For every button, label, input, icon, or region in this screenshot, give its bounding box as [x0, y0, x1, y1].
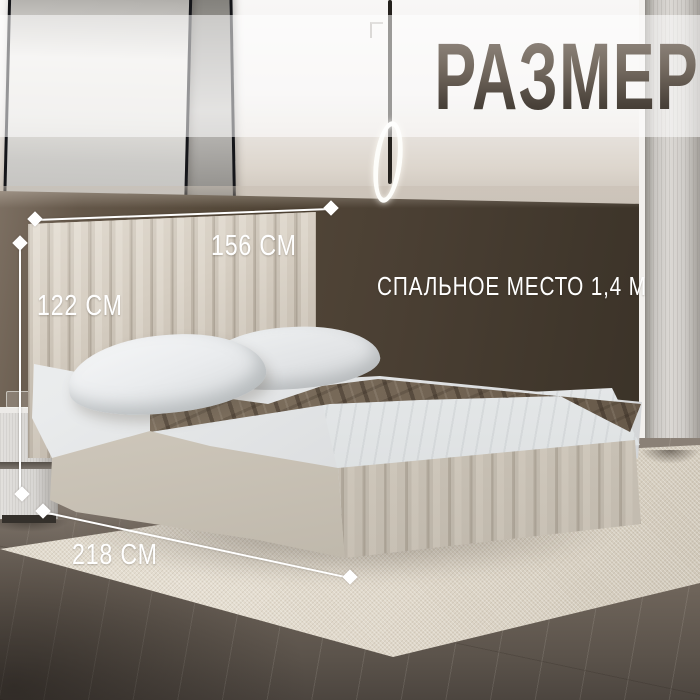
page-title-text: РАЗМЕРЫ: [434, 30, 700, 125]
wall-transition-shadow: [0, 186, 645, 208]
bed-length-label: 218 СМ: [72, 541, 158, 570]
product-dimensions-image: РАЗМЕРЫ 156 СМ 122 СМ 218 СМ СПАЛЬНОЕ МЕ…: [0, 0, 700, 700]
nightstand-plinth: [2, 515, 56, 523]
headboard-width-label: 156 СМ: [211, 232, 297, 261]
wardrobe-floor-shadow: [640, 450, 700, 464]
sleeping-area-label: СПАЛЬНОЕ МЕСТО 1,4 М: [377, 273, 647, 299]
headboard-height-label: 122 СМ: [37, 292, 123, 321]
nightstand-drawer-gap: [0, 462, 58, 469]
